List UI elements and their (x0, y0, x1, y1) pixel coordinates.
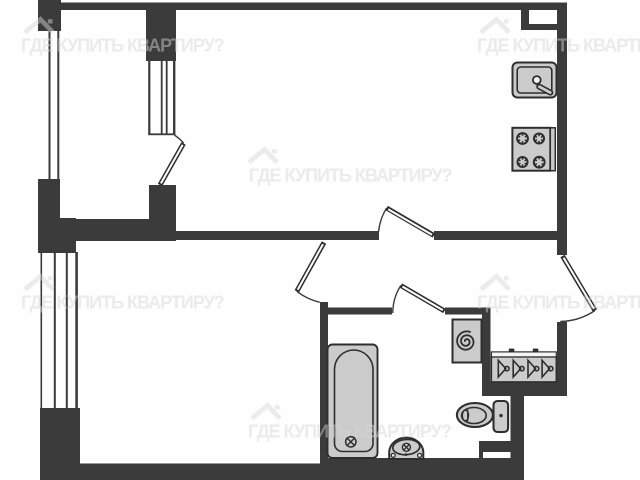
svg-text:ГДЕ КУПИТЬ КВАРТИРУ?: ГДЕ КУПИТЬ КВАРТИРУ? (477, 36, 640, 56)
svg-text:ГДЕ КУПИТЬ КВАРТИРУ?: ГДЕ КУПИТЬ КВАРТИРУ? (21, 293, 224, 313)
svg-text:ГДЕ КУПИТЬ КВАРТИРУ?: ГДЕ КУПИТЬ КВАРТИРУ? (21, 36, 224, 56)
svg-text:ГДЕ КУПИТЬ КВАРТИРУ?: ГДЕ КУПИТЬ КВАРТИРУ? (248, 422, 451, 442)
svg-text:ГДЕ КУПИТЬ КВАРТИРУ?: ГДЕ КУПИТЬ КВАРТИРУ? (249, 166, 452, 186)
svg-text:ГДЕ КУПИТЬ КВАРТИРУ?: ГДЕ КУПИТЬ КВАРТИРУ? (477, 293, 640, 313)
